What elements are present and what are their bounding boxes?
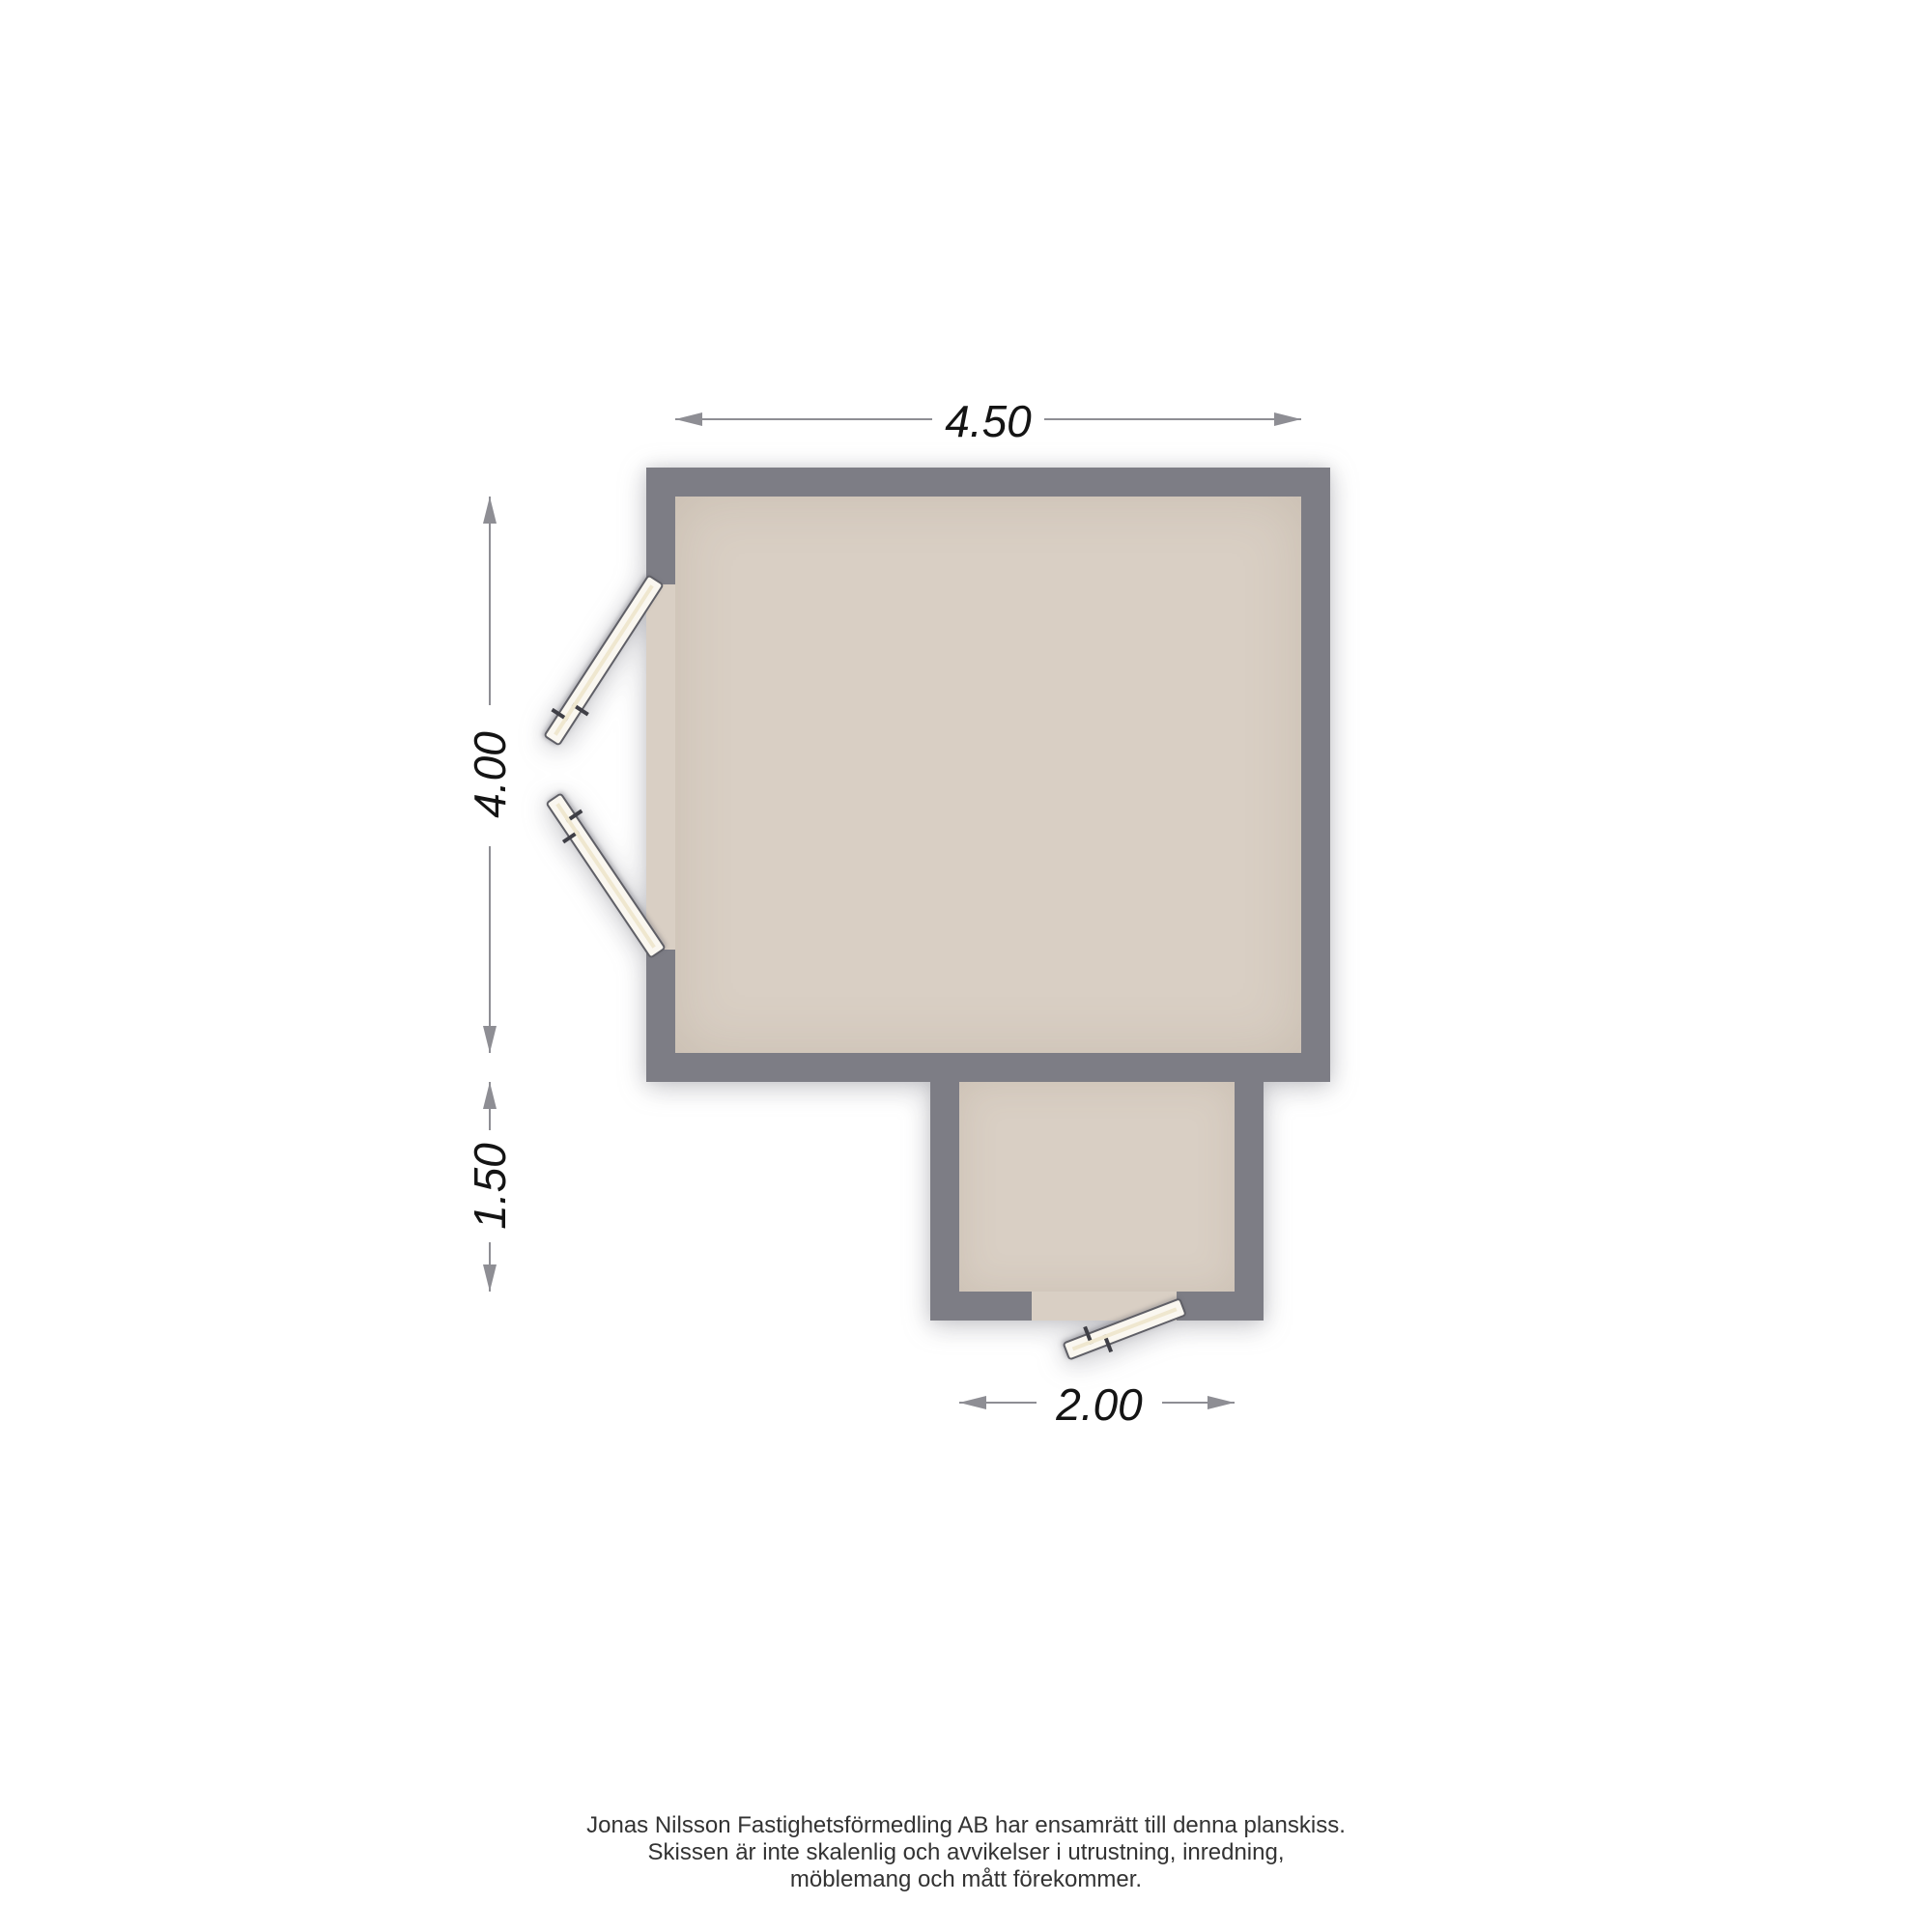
wall-right	[1301, 468, 1330, 1082]
floorplan-canvas: 4.50 4.00 1.50 2.00 Jonas Nilsson Fastig…	[0, 0, 1932, 1932]
wall-extension-left	[930, 1082, 959, 1321]
extension-floor	[959, 1082, 1235, 1292]
dim-arrow-up-icon	[483, 1082, 497, 1109]
left-door-threshold	[646, 584, 675, 950]
door-hinge-mark	[565, 810, 582, 823]
wall-extension-bottom-left	[930, 1292, 1032, 1321]
dimension-extension-width-label: 2.00	[1056, 1378, 1143, 1431]
main-room-floor	[675, 497, 1301, 1053]
door-hinge-mark	[1103, 1334, 1114, 1352]
dim-arrow-right-icon	[1274, 412, 1301, 426]
copyright-disclaimer: Jonas Nilsson Fastighetsförmedling AB ha…	[0, 1812, 1932, 1893]
dimension-top-label: 4.50	[945, 395, 1032, 447]
door-hinge-mark	[1083, 1326, 1094, 1345]
dimension-line	[675, 418, 932, 420]
dim-arrow-left-icon	[959, 1396, 986, 1409]
dimension-line	[489, 846, 491, 1053]
wall-extension-right	[1235, 1082, 1264, 1321]
dim-arrow-right-icon	[1207, 1396, 1235, 1409]
door-hinge-mark	[562, 830, 580, 843]
dimension-main-height-label: 4.00	[464, 731, 516, 818]
door-hinge-mark	[572, 703, 589, 717]
wall-top	[646, 468, 1330, 497]
disclaimer-line: Jonas Nilsson Fastighetsförmedling AB ha…	[0, 1812, 1932, 1839]
wall-bottom-main	[646, 1053, 1330, 1082]
dim-arrow-down-icon	[483, 1264, 497, 1292]
wall-left-lower-segment	[646, 950, 675, 1082]
dimension-line	[1044, 418, 1301, 420]
dimension-line	[489, 497, 491, 705]
disclaimer-line: Skissen är inte skalenlig och avvikelser…	[0, 1839, 1932, 1866]
dimension-extension-height-label: 1.50	[464, 1143, 516, 1230]
door-hinge-mark	[551, 708, 568, 722]
dim-arrow-left-icon	[675, 412, 702, 426]
wall-extension-bottom-right	[1177, 1292, 1264, 1321]
dim-arrow-down-icon	[483, 1026, 497, 1053]
building	[0, 0, 1932, 1932]
dim-arrow-up-icon	[483, 497, 497, 524]
wall-left-upper-segment	[646, 468, 675, 584]
disclaimer-line: möblemang och mått förekommer.	[0, 1866, 1932, 1893]
